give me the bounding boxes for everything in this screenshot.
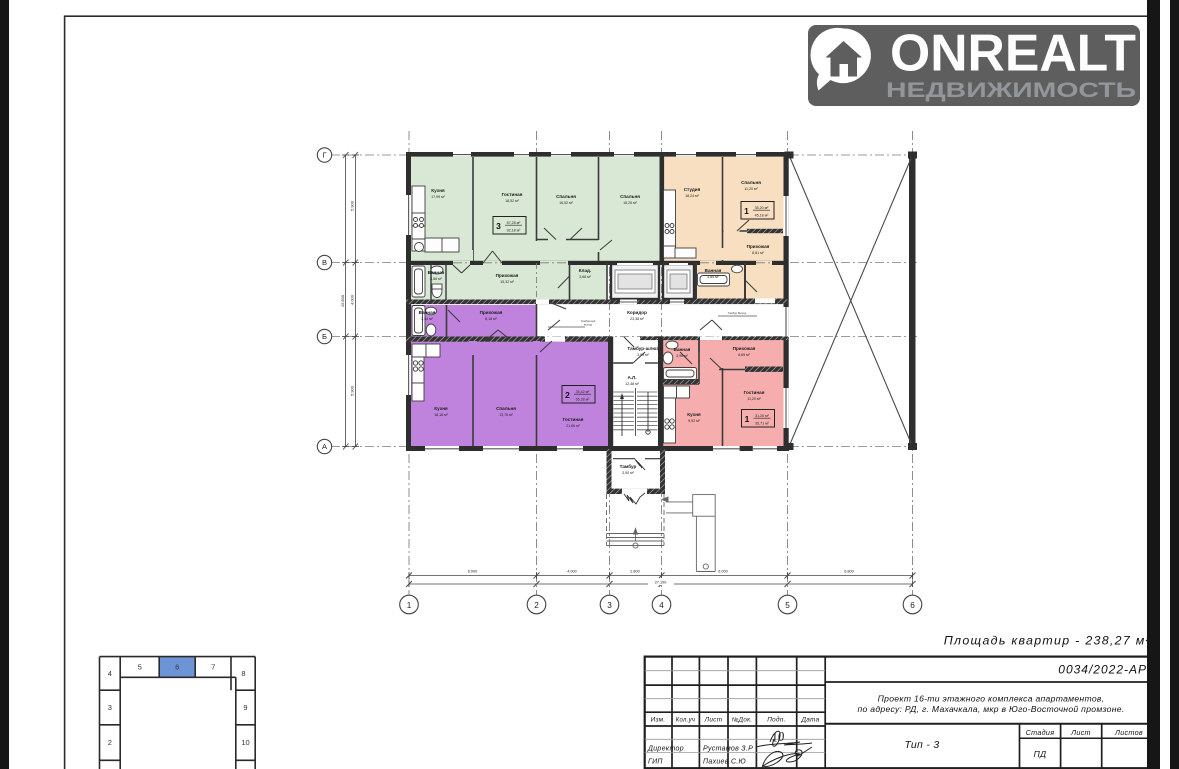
svg-text:92,18 м²: 92,18 м² xyxy=(507,229,521,233)
svg-text:2.800: 2.800 xyxy=(630,570,640,574)
svg-text:Коридор: Коридор xyxy=(627,310,647,315)
svg-text:Кол.уч: Кол.уч xyxy=(676,718,696,724)
svg-text:Дата: Дата xyxy=(800,717,819,724)
svg-text:23,38 м²: 23,38 м² xyxy=(630,317,644,321)
svg-text:выход: выход xyxy=(584,323,592,327)
svg-text:Б: Б xyxy=(322,332,327,341)
svg-text:Клад.: Клад. xyxy=(579,268,591,273)
svg-text:8,81 м²: 8,81 м² xyxy=(752,251,764,255)
svg-text:8: 8 xyxy=(241,669,245,678)
svg-text:Проект 16-ти этажного комплекс: Проект 16-ти этажного комплекса апартаме… xyxy=(878,694,1105,704)
svg-text:18,24 м²: 18,24 м² xyxy=(685,194,699,198)
svg-text:Ванная: Ванная xyxy=(428,270,445,275)
svg-text:Лист: Лист xyxy=(704,717,723,724)
svg-text:57,28 м²: 57,28 м² xyxy=(507,221,521,225)
svg-text:Гостиная: Гостиная xyxy=(502,192,523,197)
svg-text:Прихожая: Прихожая xyxy=(733,346,756,351)
svg-text:Директор: Директор xyxy=(647,746,684,753)
svg-text:8,18 м²: 8,18 м² xyxy=(485,317,497,321)
svg-text:3,85 м²: 3,85 м² xyxy=(707,275,719,279)
svg-text:Гостиная: Гостиная xyxy=(744,390,765,395)
svg-text:Студия: Студия xyxy=(684,187,701,192)
svg-text:35,71 м²: 35,71 м² xyxy=(755,422,769,426)
svg-text:Изм.: Изм. xyxy=(651,717,666,724)
svg-text:3,96 м²: 3,96 м² xyxy=(676,354,688,358)
svg-text:5: 5 xyxy=(138,663,142,672)
svg-text:4.000: 4.000 xyxy=(350,294,355,305)
svg-text:Спальня: Спальня xyxy=(620,194,640,199)
svg-text:7: 7 xyxy=(211,663,215,672)
svg-text:4: 4 xyxy=(108,669,112,678)
svg-text:А: А xyxy=(322,442,327,451)
svg-text:1: 1 xyxy=(744,206,749,216)
svg-text:ONREALT: ONREALT xyxy=(890,25,1136,83)
svg-text:Тип - 3: Тип - 3 xyxy=(905,739,940,751)
svg-text:по адресу: РД, г. Махачкала, м: по адресу: РД, г. Махачкала, мкр в Юго-В… xyxy=(857,704,1124,714)
svg-text:Кухня: Кухня xyxy=(687,412,701,417)
svg-text:Подп.: Подп. xyxy=(767,716,786,724)
svg-text:2: 2 xyxy=(565,390,570,400)
svg-text:Кухня: Кухня xyxy=(431,188,445,193)
svg-text:17,99 м²: 17,99 м² xyxy=(431,195,445,199)
svg-text:Стадия: Стадия xyxy=(1026,728,1055,737)
svg-text:В: В xyxy=(322,258,327,267)
svg-text:ПД: ПД xyxy=(1034,749,1047,759)
svg-text:Пахиев С.Ю: Пахиев С.Ю xyxy=(703,759,746,766)
svg-text:Тамбур Выход: Тамбур Выход xyxy=(728,311,747,315)
svg-text:А.Л.: А.Л. xyxy=(627,375,636,380)
svg-text:3: 3 xyxy=(496,221,501,231)
svg-text:Лист: Лист xyxy=(1070,728,1091,737)
svg-text:9,92 м²: 9,92 м² xyxy=(688,419,700,423)
svg-text:35,20 м²: 35,20 м² xyxy=(755,206,769,210)
svg-text:6.800: 6.800 xyxy=(844,570,854,574)
svg-text:Спальня: Спальня xyxy=(496,406,516,411)
svg-text:Г: Г xyxy=(322,151,326,160)
svg-text:Тамбур: Тамбур xyxy=(620,463,637,469)
svg-text:Гостиная: Гостиная xyxy=(563,417,584,422)
svg-text:Ванная: Ванная xyxy=(419,310,436,315)
svg-text:3,64 м²: 3,64 м² xyxy=(421,317,433,321)
svg-text:18,26 м²: 18,26 м² xyxy=(623,201,637,205)
svg-text:11,20 м²: 11,20 м² xyxy=(744,187,758,191)
svg-text:Ванная: Ванная xyxy=(674,347,691,352)
svg-text:9: 9 xyxy=(243,703,247,712)
svg-text:2: 2 xyxy=(108,738,112,747)
svg-text:16,52 м²: 16,52 м² xyxy=(559,201,573,205)
svg-text:18,52 м²: 18,52 м² xyxy=(505,199,519,203)
svg-text:6.000: 6.000 xyxy=(718,570,728,574)
svg-text:Рустамов З.Р: Рустамов З.Р xyxy=(703,746,753,753)
svg-text:8,69 м²: 8,69 м² xyxy=(738,353,750,357)
svg-text:Прихожая: Прихожая xyxy=(480,310,503,315)
svg-text:13,76 м²: 13,76 м² xyxy=(499,413,513,417)
svg-text:21,66 м²: 21,66 м² xyxy=(566,424,580,428)
svg-text:1: 1 xyxy=(407,601,412,610)
svg-text:4.000: 4.000 xyxy=(567,570,577,574)
svg-text:6.000: 6.000 xyxy=(468,570,478,574)
svg-text:ГИП: ГИП xyxy=(648,759,663,766)
svg-text:Ванная: Ванная xyxy=(705,268,722,273)
svg-text:3,68 м²: 3,68 м² xyxy=(579,275,591,279)
svg-text:3,90 м²: 3,90 м² xyxy=(622,471,634,475)
svg-text:4: 4 xyxy=(659,601,664,610)
svg-text:3: 3 xyxy=(108,703,112,712)
svg-text:15.800: 15.800 xyxy=(340,294,345,307)
svg-text:6: 6 xyxy=(175,663,179,672)
svg-text:45,18 м²: 45,18 м² xyxy=(755,214,769,218)
svg-text:11,20 м²: 11,20 м² xyxy=(747,397,761,401)
svg-text:0034/2022-АР: 0034/2022-АР xyxy=(1058,663,1147,677)
svg-text:18,18 м²: 18,18 м² xyxy=(434,413,448,417)
svg-text:Кухня: Кухня xyxy=(434,406,448,411)
svg-text:35,42 м²: 35,42 м² xyxy=(576,390,590,394)
svg-text:Прихожая: Прихожая xyxy=(747,244,770,249)
svg-text:5: 5 xyxy=(785,601,790,610)
svg-text:Спальня: Спальня xyxy=(741,180,761,185)
svg-text:3: 3 xyxy=(607,601,612,610)
svg-text:65,28 м²: 65,28 м² xyxy=(576,398,590,402)
svg-text:Листов: Листов xyxy=(1114,728,1143,737)
svg-text:6: 6 xyxy=(910,601,915,610)
svg-text:НЕДВИЖИМОСТЬ: НЕДВИЖИМОСТЬ xyxy=(886,78,1136,102)
svg-text:№Док.: №Док. xyxy=(732,717,753,724)
svg-text:1: 1 xyxy=(745,414,750,424)
svg-text:5.900: 5.900 xyxy=(350,200,355,211)
svg-text:3,66 м²: 3,66 м² xyxy=(430,277,442,281)
svg-text:12,48 м²: 12,48 м² xyxy=(625,382,639,386)
svg-text:2: 2 xyxy=(534,601,539,610)
svg-text:Спальня: Спальня xyxy=(556,194,576,199)
svg-text:5.900: 5.900 xyxy=(350,385,355,396)
svg-text:15,32 м²: 15,32 м² xyxy=(500,280,514,284)
svg-text:27.100: 27.100 xyxy=(655,581,667,585)
svg-text:Площадь квартир - 238,27 м²: Площадь квартир - 238,27 м² xyxy=(944,634,1151,648)
svg-text:Прихожая: Прихожая xyxy=(496,273,519,278)
svg-text:10: 10 xyxy=(241,738,249,747)
svg-text:3,93 м²: 3,93 м² xyxy=(637,353,649,357)
svg-text:31,20 м²: 31,20 м² xyxy=(755,414,769,418)
